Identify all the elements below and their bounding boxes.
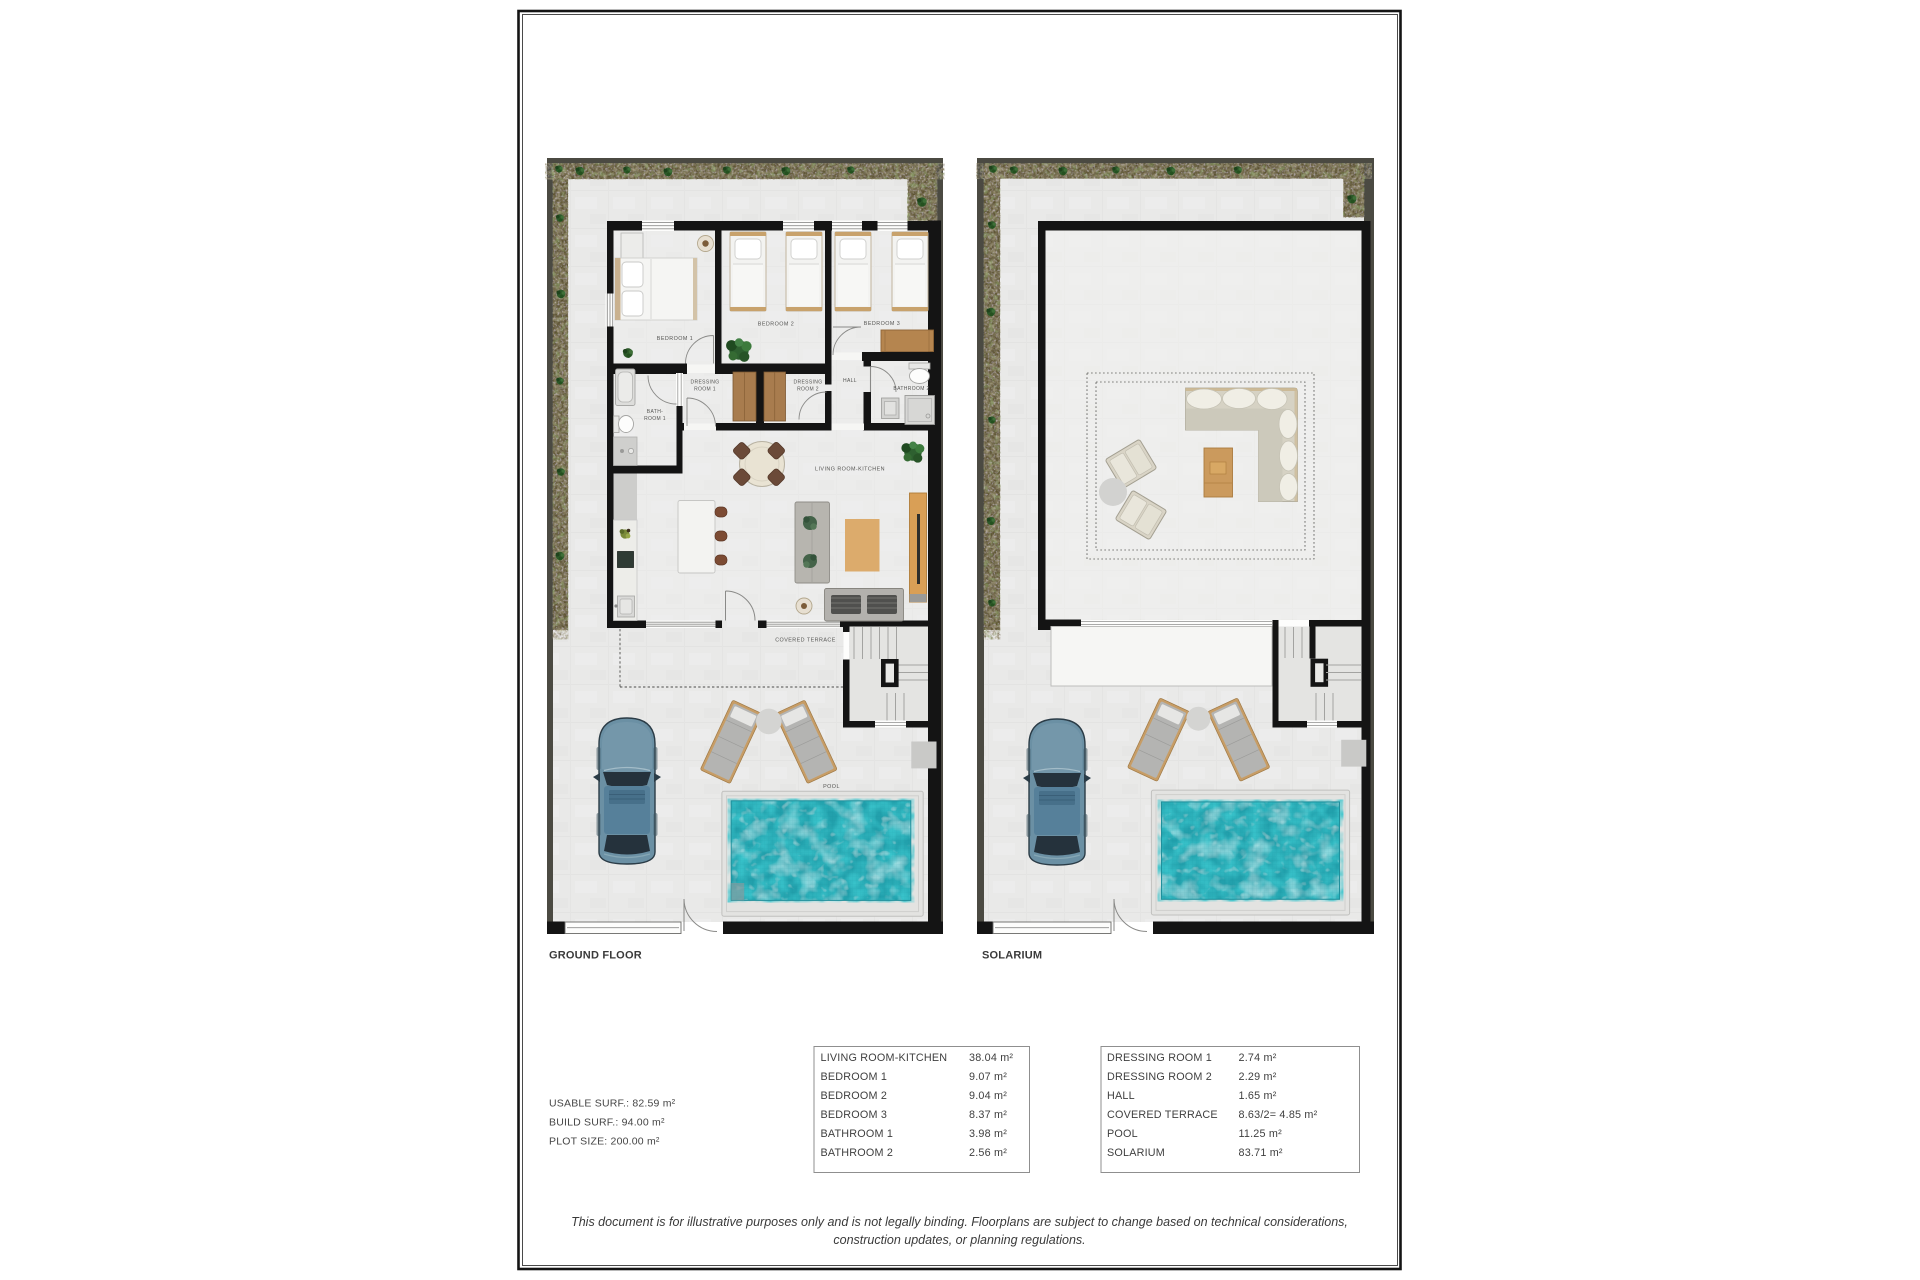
svg-text:BATH-: BATH- [647,409,663,415]
svg-text:This document is for illustrat: This document is for illustrative purpos… [571,1215,1348,1229]
svg-text:3.98 m²: 3.98 m² [969,1128,1007,1140]
svg-text:COVERED TERRACE: COVERED TERRACE [775,638,836,644]
svg-text:BEDROOM 2: BEDROOM 2 [821,1090,888,1102]
svg-text:DRESSING ROOM 2: DRESSING ROOM 2 [1107,1071,1212,1083]
svg-text:BEDROOM 1: BEDROOM 1 [821,1071,888,1083]
svg-text:LIVING ROOM-KITCHEN: LIVING ROOM-KITCHEN [821,1052,948,1064]
svg-text:BEDROOM 3: BEDROOM 3 [864,321,900,327]
svg-text:11.25 m²: 11.25 m² [1239,1128,1283,1140]
svg-text:HALL: HALL [843,378,857,384]
svg-text:9.07 m²: 9.07 m² [969,1071,1007,1083]
svg-text:PLOT SIZE: 200.00 m²: PLOT SIZE: 200.00 m² [549,1136,660,1148]
svg-text:DRESSING ROOM 1: DRESSING ROOM 1 [1107,1052,1212,1064]
svg-text:ROOM 2: ROOM 2 [797,387,819,393]
svg-text:POOL: POOL [823,784,840,790]
svg-text:BEDROOM 1: BEDROOM 1 [657,336,693,342]
svg-text:BUILD SURF.: 94.00 m²: BUILD SURF.: 94.00 m² [549,1117,665,1129]
svg-text:POOL: POOL [1107,1128,1138,1140]
svg-text:COVERED TERRACE: COVERED TERRACE [1107,1109,1218,1121]
svg-text:SOLARIUM: SOLARIUM [982,950,1042,962]
svg-text:2.74 m²: 2.74 m² [1239,1052,1277,1064]
svg-text:HALL: HALL [1107,1090,1135,1102]
svg-text:BATHROOM 2: BATHROOM 2 [893,386,929,392]
svg-text:DRESSING: DRESSING [691,380,720,386]
svg-text:ROOM 1: ROOM 1 [694,387,716,393]
svg-text:8.63/2= 4.85 m²: 8.63/2= 4.85 m² [1239,1109,1318,1121]
svg-text:BEDROOM 2: BEDROOM 2 [758,322,794,328]
svg-text:1.65 m²: 1.65 m² [1239,1090,1277,1102]
svg-text:BEDROOM 3: BEDROOM 3 [821,1109,888,1121]
svg-text:USABLE SURF.: 82.59 m²: USABLE SURF.: 82.59 m² [549,1098,676,1110]
svg-text:LIVING ROOM-KITCHEN: LIVING ROOM-KITCHEN [815,467,885,473]
svg-text:2.56 m²: 2.56 m² [969,1147,1007,1159]
svg-text:construction updates, or plann: construction updates, or planning regula… [833,1233,1085,1247]
svg-text:83.71 m²: 83.71 m² [1239,1147,1283,1159]
svg-text:BATHROOM 1: BATHROOM 1 [821,1128,894,1140]
svg-text:GROUND FLOOR: GROUND FLOOR [549,950,642,962]
svg-text:ROOM 1: ROOM 1 [644,416,666,422]
svg-text:DRESSING: DRESSING [794,380,823,386]
svg-text:8.37 m²: 8.37 m² [969,1109,1007,1121]
svg-text:SOLARIUM: SOLARIUM [1107,1147,1165,1159]
svg-text:BATHROOM 2: BATHROOM 2 [821,1147,894,1159]
svg-text:2.29 m²: 2.29 m² [1239,1071,1277,1083]
svg-text:9.04 m²: 9.04 m² [969,1090,1007,1102]
svg-text:38.04 m²: 38.04 m² [969,1052,1013,1064]
